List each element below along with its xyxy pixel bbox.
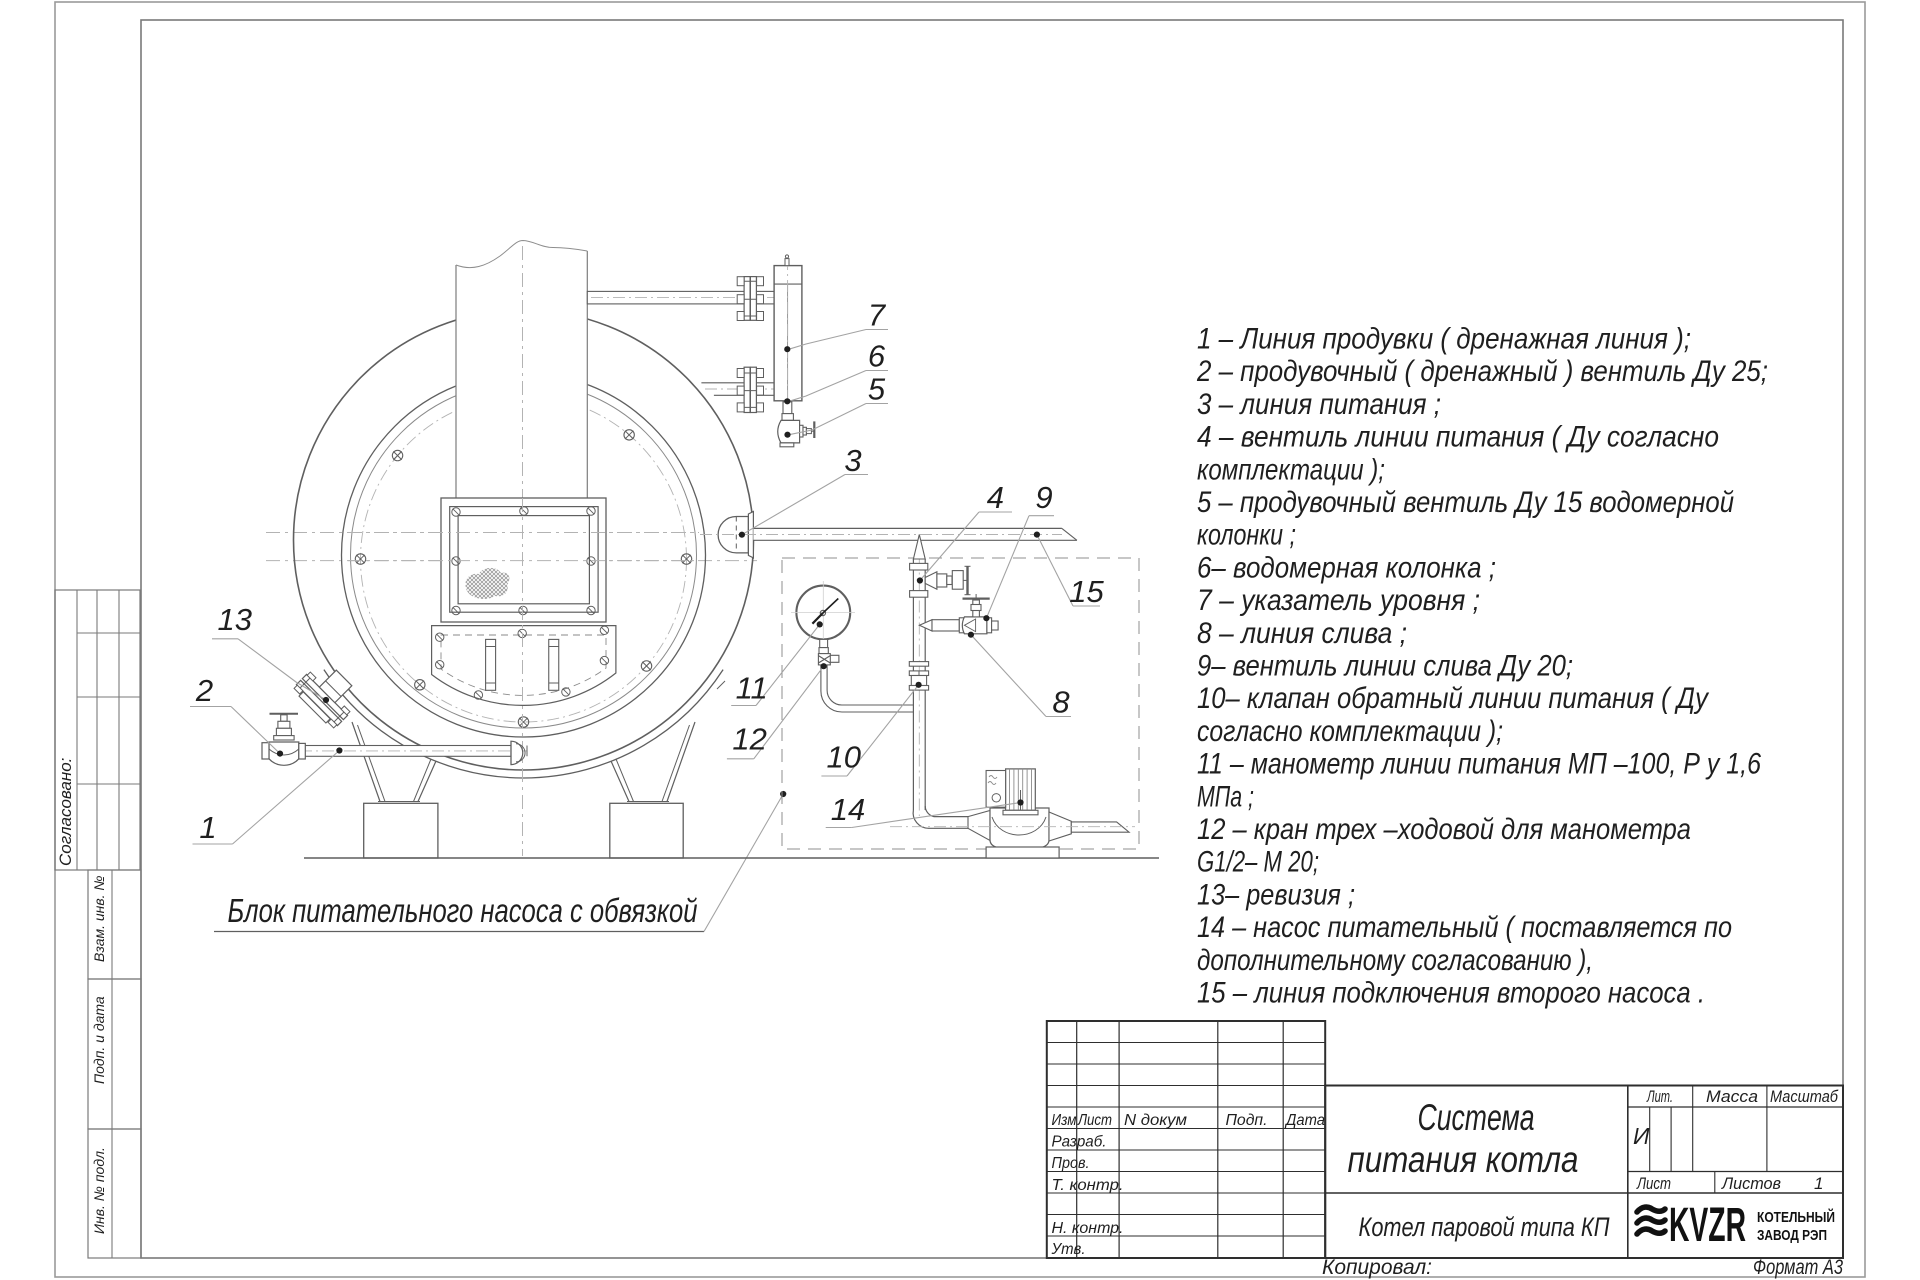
- svg-text:5: 5: [868, 372, 886, 407]
- svg-text:14: 14: [831, 792, 865, 827]
- svg-text:14 – насос питательный ( пос: 14 – насос питательный ( поставляется по: [1197, 911, 1732, 944]
- svg-text:Лист: Лист: [1636, 1174, 1671, 1193]
- svg-text:Система: Система: [1418, 1097, 1535, 1138]
- svg-text:Т. контр.: Т. контр.: [1052, 1177, 1124, 1194]
- svg-text:Лист: Лист: [1077, 1112, 1112, 1129]
- svg-text:КОТЕЛЬНЫЙ: КОТЕЛЬНЫЙ: [1757, 1208, 1835, 1226]
- svg-text:4: 4: [987, 480, 1004, 515]
- svg-text:Листов: Листов: [1721, 1174, 1781, 1193]
- svg-text:Взам. инв. №: Взам. инв. №: [91, 875, 107, 962]
- svg-text:KVZR: KVZR: [1669, 1199, 1746, 1252]
- svg-text:G1/2– М 20;: G1/2– М 20;: [1197, 846, 1319, 879]
- svg-text:Пров.: Пров.: [1052, 1155, 1090, 1172]
- svg-text:8: 8: [1052, 685, 1070, 720]
- svg-text:Н. контр.: Н. контр.: [1052, 1220, 1124, 1237]
- svg-text:7: 7: [868, 298, 887, 333]
- svg-text:2: 2: [195, 673, 213, 708]
- svg-text:4 – вентиль линии питания (: 4 – вентиль линии питания ( Ду согласно: [1197, 421, 1719, 454]
- svg-text:3: 3: [844, 443, 861, 478]
- svg-text:8 – линия слива ;: 8 – линия слива ;: [1197, 617, 1407, 650]
- svg-text:11 – манометр линии питания: 11 – манометр линии питания МП –100, Р у…: [1197, 748, 1761, 781]
- svg-text:12: 12: [732, 721, 766, 756]
- svg-text:И: И: [1633, 1123, 1650, 1149]
- svg-text:Копировал:: Копировал:: [1322, 1256, 1432, 1279]
- svg-text:согласно комплектации );: согласно комплектации );: [1197, 715, 1503, 748]
- svg-text:10– клапан обратный линии пит: 10– клапан обратный линии питания ( Ду: [1197, 682, 1710, 715]
- svg-text:колонки ;: колонки ;: [1197, 519, 1296, 552]
- svg-text:Изм: Изм: [1052, 1112, 1077, 1129]
- svg-text:комплектации );: комплектации );: [1197, 453, 1385, 486]
- svg-text:Разраб.: Разраб.: [1052, 1134, 1107, 1151]
- svg-text:дополнительному согласованию ): дополнительному согласованию ),: [1197, 944, 1593, 977]
- svg-text:питания котла: питания котла: [1348, 1139, 1579, 1180]
- svg-text:Подп. и дата: Подп. и дата: [91, 996, 107, 1084]
- svg-text:ЗАВОД РЭП: ЗАВОД РЭП: [1757, 1227, 1827, 1244]
- svg-text:Котел паровой типа КП: Котел паровой типа КП: [1359, 1212, 1610, 1242]
- svg-text:Согласовано:: Согласовано:: [56, 757, 75, 866]
- svg-text:Инв. № подл.: Инв. № подл.: [91, 1147, 107, 1234]
- svg-text:Утв.: Утв.: [1051, 1241, 1086, 1258]
- svg-text:Дата: Дата: [1284, 1112, 1325, 1129]
- svg-text:12 – кран трех –ходовой для м: 12 – кран трех –ходовой для манометра: [1197, 813, 1691, 846]
- svg-text:Формат А3: Формат А3: [1753, 1256, 1843, 1279]
- svg-text:1: 1: [199, 810, 216, 845]
- svg-text:13: 13: [217, 602, 251, 637]
- svg-text:6: 6: [868, 339, 886, 374]
- svg-text:Масса: Масса: [1706, 1087, 1758, 1106]
- svg-text:10: 10: [826, 739, 860, 774]
- svg-text:15 – линия подключения второг: 15 – линия подключения второго насоса .: [1197, 977, 1705, 1010]
- svg-text:1 – Линия продувки ( дренажн: 1 – Линия продувки ( дренажная линия );: [1197, 323, 1691, 356]
- svg-text:9: 9: [1035, 480, 1052, 515]
- svg-text:7 – указатель уровня ;: 7 – указатель уровня ;: [1197, 584, 1480, 617]
- svg-text:N докум: N докум: [1124, 1112, 1187, 1129]
- svg-text:Лит.: Лит.: [1646, 1087, 1673, 1106]
- svg-text:2 – продувочный ( дренажный: 2 – продувочный ( дренажный ) вентиль Ду…: [1196, 355, 1768, 388]
- svg-text:3 – линия питания ;: 3 – линия питания ;: [1197, 388, 1441, 421]
- svg-text:МПа ;: МПа ;: [1197, 780, 1254, 813]
- svg-text:9– вентиль линии слива Ду 20: 9– вентиль линии слива Ду 20;: [1197, 650, 1573, 683]
- svg-text:1: 1: [1814, 1174, 1823, 1193]
- svg-text:13– ревизия ;: 13– ревизия ;: [1197, 878, 1355, 911]
- svg-text:Подп.: Подп.: [1226, 1112, 1268, 1129]
- svg-text:5 – продувочный вентиль Ду 1: 5 – продувочный вентиль Ду 15 водомерной: [1197, 486, 1734, 519]
- svg-text:15: 15: [1069, 574, 1104, 609]
- svg-text:Масштаб: Масштаб: [1770, 1087, 1839, 1106]
- svg-text:Блок питательного насоса с обв: Блок питательного насоса с обвязкой: [228, 892, 698, 929]
- svg-text:11: 11: [736, 671, 768, 706]
- svg-text:6– водомерная колонка ;: 6– водомерная колонка ;: [1197, 551, 1496, 584]
